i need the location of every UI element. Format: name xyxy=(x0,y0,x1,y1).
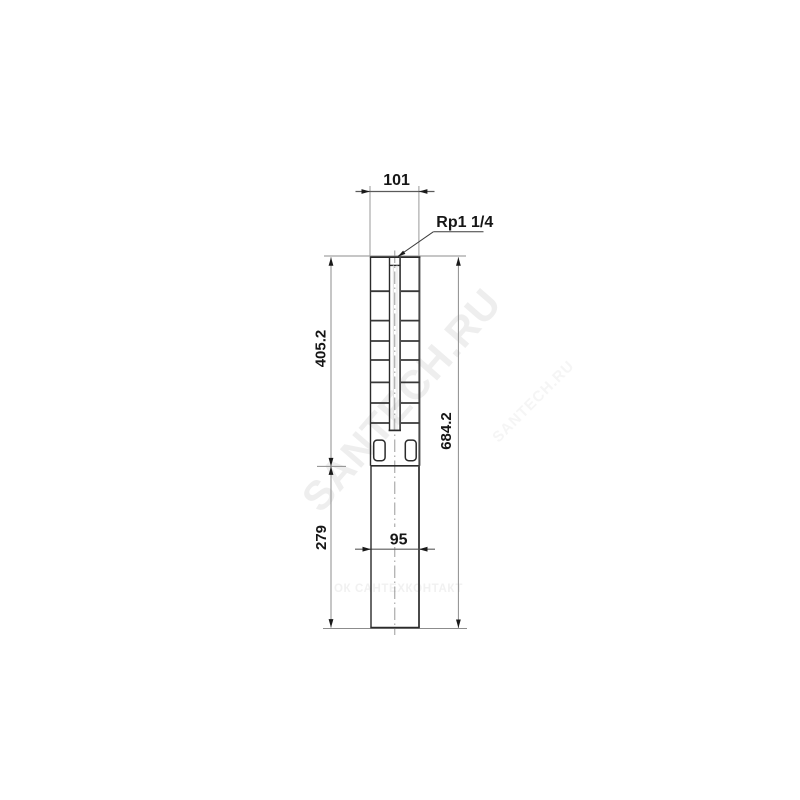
svg-text:684.2: 684.2 xyxy=(438,412,455,450)
svg-text:279: 279 xyxy=(313,525,330,550)
svg-text:Rp1 1/4: Rp1 1/4 xyxy=(436,214,493,231)
svg-text:SANTECH.RU: SANTECH.RU xyxy=(489,357,578,446)
svg-text:95: 95 xyxy=(390,532,408,549)
svg-text:101: 101 xyxy=(383,172,410,189)
svg-text:ОК САНТЕХКОНТАКТ: ОК САНТЕХКОНТАКТ xyxy=(334,583,463,595)
svg-text:405.2: 405.2 xyxy=(313,330,330,368)
